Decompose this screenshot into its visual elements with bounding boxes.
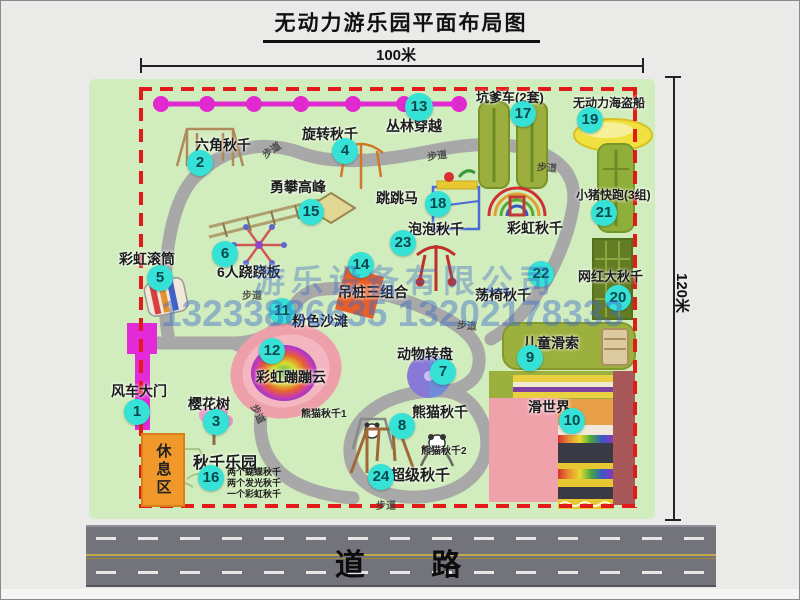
swing-park-note-1: 两个蝴蝶秋千 — [227, 467, 281, 477]
label-pink-beach: 粉色沙滩 — [292, 311, 348, 331]
badge-20: 20 — [605, 285, 631, 311]
park-plan-page: 无动力游乐园平面布局图 100米 120米 — [0, 0, 800, 600]
walkway-label: 步道 — [456, 316, 477, 333]
label-bubble-swing: 泡泡秋千 — [408, 219, 464, 239]
label-pit-car: 坑爹车(2套) — [476, 87, 544, 106]
curb-strip — [1, 589, 800, 600]
top-dimension-line — [141, 65, 643, 67]
badge-17: 17 — [510, 101, 536, 127]
badge-16: 16 — [198, 465, 224, 491]
label-super-swing: 超级秋千 — [390, 464, 450, 485]
rest-area: 休息区 — [141, 433, 185, 507]
badge-2: 2 — [187, 150, 213, 176]
badge-12: 12 — [259, 338, 285, 364]
rest-area-label: 休息区 — [153, 443, 174, 497]
badge-11: 11 — [269, 298, 295, 324]
boundary-top — [139, 87, 637, 91]
badge-14: 14 — [348, 252, 374, 278]
label-rainbow-swing: 彩虹秋千 — [507, 218, 563, 238]
walkway-label: 步道 — [376, 497, 396, 512]
page-title: 无动力游乐园平面布局图 — [1, 7, 800, 43]
right-dimension-tick-top — [665, 76, 681, 78]
badge-10: 10 — [559, 408, 585, 434]
label-windmill-gate: 风车大门 — [111, 381, 167, 401]
badge-1: 1 — [124, 399, 150, 425]
road-label: 道 路 — [86, 540, 716, 584]
badge-4: 4 — [332, 138, 358, 164]
label-panda-swing: 熊猫秋千 — [412, 402, 468, 422]
badge-7: 7 — [430, 359, 456, 385]
label-hanging-pile: 吊桩三组合 — [338, 282, 408, 302]
badge-15: 15 — [298, 199, 324, 225]
swing-park-note-2: 两个发光秋千 — [227, 478, 281, 488]
walkway-label: 步道 — [242, 287, 262, 302]
road: 道 路 — [86, 525, 716, 587]
badge-9: 9 — [517, 345, 543, 371]
swing-park-note-3: 一个彩虹秋千 — [227, 489, 281, 499]
top-dimension-tick-left — [140, 58, 142, 73]
walkway-label: 步道 — [536, 158, 557, 175]
badge-8: 8 — [389, 413, 415, 439]
top-dimension-tick-right — [642, 58, 644, 73]
badge-22: 22 — [528, 261, 554, 287]
label-panda-swing-1: 熊猫秋千1 — [301, 405, 347, 420]
badge-23: 23 — [390, 230, 416, 256]
label-rainbow-cloud: 彩虹蹦蹦云 — [256, 367, 326, 387]
badge-6: 6 — [212, 241, 238, 267]
right-dimension-label: 120米 — [672, 273, 693, 313]
label-panda-swing-2: 熊猫秋千2 — [421, 442, 467, 457]
badge-19: 19 — [577, 107, 603, 133]
badge-18: 18 — [425, 191, 451, 217]
walkway-label: 步道 — [426, 146, 448, 164]
label-big-swing: 网红大秋千 — [578, 266, 643, 285]
label-jumping-horse: 跳跳马 — [376, 188, 418, 208]
badge-21: 21 — [591, 200, 617, 226]
badge-5: 5 — [147, 265, 173, 291]
boundary-right — [633, 87, 637, 508]
top-dimension-label: 100米 — [356, 44, 436, 65]
label-piggy-run: 小猪快跑(3组) — [576, 186, 651, 203]
badge-13: 13 — [405, 93, 433, 121]
label-chair-swing: 荡椅秋千 — [475, 285, 531, 305]
badge-3: 3 — [203, 409, 229, 435]
right-dimension-tick-bottom — [665, 519, 681, 521]
label-climbing-peak: 勇攀高峰 — [270, 177, 326, 197]
page-title-text: 无动力游乐园平面布局图 — [263, 7, 540, 43]
badge-24: 24 — [368, 464, 394, 490]
